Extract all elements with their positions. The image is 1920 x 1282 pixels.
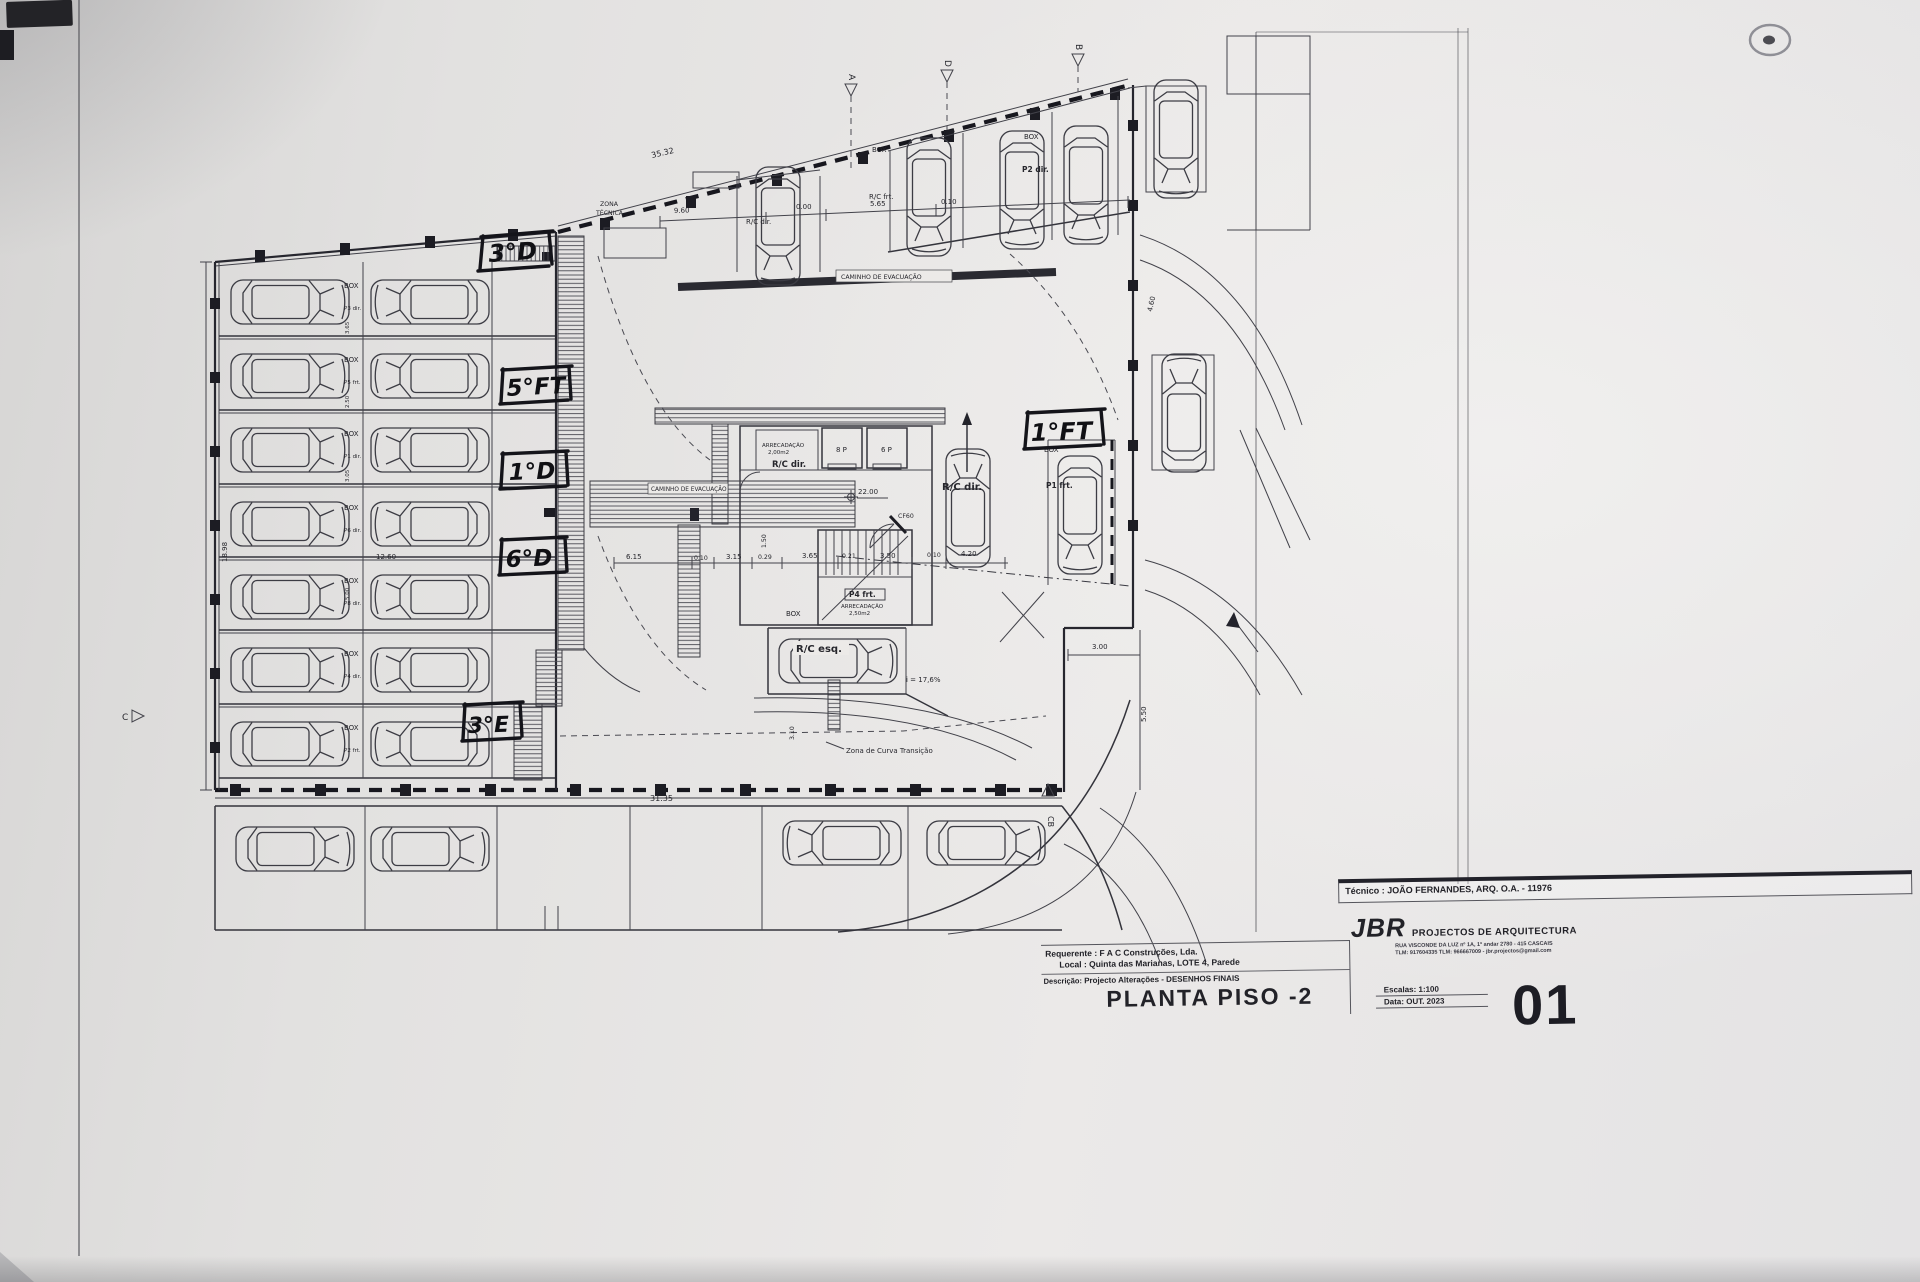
car-icon [783, 821, 901, 865]
corner-shadow [0, 1252, 34, 1282]
car-icon [231, 428, 349, 472]
cf60-door-label: CF60 [898, 513, 914, 520]
car-icon [371, 648, 489, 692]
firm-name: PROJECTOS DE ARQUITECTURA [1412, 925, 1577, 939]
p2-dir-label: P2 dir. [1022, 165, 1049, 174]
dim-label: 4.20 [961, 550, 977, 558]
car-icon [371, 280, 489, 324]
dim-label: 3.50 [880, 552, 896, 560]
handwritten-3d: 3°D [487, 237, 537, 268]
handwritten-3e: 3°E [467, 713, 509, 739]
elevator-6p-label: 6 P [881, 446, 892, 454]
dim-label: 12.60 [376, 553, 396, 561]
dim-label: 0.00 [796, 203, 812, 211]
grommet-dot [1763, 36, 1775, 45]
plan-title: PLANTA PISO -2 [1042, 982, 1350, 1014]
storage-label: ARRECADAÇÃO [762, 442, 805, 449]
car-icon [236, 827, 354, 871]
car-icon [907, 138, 951, 256]
elevator-8p-label: 8 P [836, 446, 847, 454]
box-label: BOX [872, 146, 887, 154]
car-icon [1064, 126, 1108, 244]
stall-code: P4 dir. [344, 674, 361, 680]
storage-label-2: ARRECADAÇÃO [841, 603, 884, 610]
stall-box-label: BOX [344, 650, 359, 658]
dim-label: 9.60 [674, 206, 690, 215]
handwritten-1d: 1°D [508, 458, 555, 486]
car-icon [927, 821, 1045, 865]
left-parking-block: BOX P3 dir. BOX P5 frt. BOX P1 dir. BOX … [219, 232, 556, 790]
car-icon [231, 280, 349, 324]
firm-logo: JBR [1351, 912, 1406, 943]
title-block-left: Requerente : F A C Construções, Lda. Loc… [1041, 940, 1351, 1019]
marker-a: A [846, 74, 856, 81]
descricao-label: Descrição: [1044, 976, 1082, 986]
marker-cb: CB [1046, 816, 1055, 827]
stall-box-label: BOX [344, 282, 359, 290]
marker-c: C [122, 713, 128, 723]
car-icon [371, 502, 489, 546]
dim-label: 5.00 [345, 587, 351, 600]
right-side-roads [1128, 36, 1310, 695]
stall-box-label: BOX [344, 356, 359, 364]
stall-code: P1 dir. [344, 454, 361, 460]
dim-label: 18.98 [221, 542, 229, 562]
section-markers: A D B C CB [122, 44, 1084, 827]
dim-label: 3.05 [345, 469, 351, 482]
car-icon [371, 428, 489, 472]
level-label: 22.00 [858, 488, 878, 496]
car-icon [231, 722, 349, 766]
edge-mark [0, 30, 14, 60]
title-block-right: JBRPROJECTOS DE ARQUITECTURA RUA VISCOND… [1348, 890, 1910, 1013]
car-icon [371, 575, 489, 619]
stall-box-label: BOX [344, 504, 359, 512]
evacuation-label: CAMINHO DE EVACUAÇÃO [841, 272, 922, 281]
top-area: ZONA TÉCNICA R/C dir. BOX R/C frt. BOX P… [595, 88, 1130, 285]
dim-label: 1.50 [761, 534, 768, 548]
stall-code: P8 dir. [344, 601, 361, 607]
dim-label: 3.00 [1092, 643, 1108, 651]
car-icon [231, 575, 349, 619]
title-block: Técnico : JOÃO FERNANDES, ARQ. O.A. - 11… [1032, 866, 1914, 1025]
photographed-floor-plan: BOX P3 dir. BOX P5 frt. BOX P1 dir. BOX … [0, 0, 1920, 1282]
car-icon [371, 827, 489, 871]
p1-frt-label: P1 frt. [1046, 481, 1073, 490]
dim-label: 0.10 [941, 198, 957, 206]
zona-tecnica-label-2: TÉCNICA [595, 208, 624, 217]
stall-box-label: BOX [344, 724, 359, 732]
p4-frt-label: P4 frt. [849, 590, 876, 599]
rc-dir-car-label: R/C dir. [942, 482, 982, 493]
rc-esq-label: R/C esq. [796, 644, 842, 655]
dim-label: 2.50 [345, 395, 351, 408]
stall-code: P3 dir. [344, 306, 361, 312]
zona-tecnica-label: ZONA [600, 201, 619, 208]
handwritten-6d: 6°D [505, 545, 552, 573]
sheet-number: 01 [1512, 971, 1579, 1037]
dim-label: 6.15 [626, 553, 642, 561]
handwritten-1ft: 1°FT [1030, 417, 1094, 447]
marker-d: D [942, 60, 952, 67]
floor-plan-drawing: BOX P3 dir. BOX P5 frt. BOX P1 dir. BOX … [0, 0, 1920, 1282]
dim-label: 0.29 [758, 554, 772, 561]
handwritten-5ft: 5°FT [506, 373, 568, 402]
stall-box-label: BOX [344, 430, 359, 438]
car-icon [231, 354, 349, 398]
dim-label: 5.65 [870, 200, 886, 208]
corner-mark [6, 0, 73, 28]
car-icon [231, 648, 349, 692]
car-icon [231, 502, 349, 546]
dim-label: 4.60 [1146, 295, 1157, 312]
box-label: BOX [1024, 133, 1039, 141]
car-icon [1162, 354, 1206, 472]
data-text: Data: OUT. 2023 [1376, 995, 1488, 1009]
hatched-walls [497, 172, 945, 780]
photo-artifacts [0, 0, 1790, 1282]
evacuation-label: CAMINHO DE EVACUAÇÃO [651, 486, 727, 493]
dim-label: 3.10 [789, 726, 796, 740]
stall-code: P2 frt. [344, 748, 361, 754]
box-label: BOX [786, 610, 801, 618]
evacuation-paths: CAMINHO DE EVACUAÇÃO CAMINHO DE EVACUAÇÃ… [648, 270, 1056, 494]
car-icon [1154, 80, 1198, 198]
slope-label: i = 17,6% [906, 676, 941, 684]
dim-label: 3.65 [345, 321, 351, 334]
tecnico-text: Técnico : JOÃO FERNANDES, ARQ. O.A. - 11… [1345, 883, 1552, 896]
dim-label: 5.50 [1140, 706, 1148, 722]
car-icon [1000, 131, 1044, 249]
rc-dir-label: R/C dir. [746, 218, 771, 226]
dim-label: 3.65 [802, 552, 818, 560]
bottom-box-stall: BOX R/C esq. [768, 610, 948, 716]
car-icon [1058, 456, 1102, 574]
dim-label: 3.15 [726, 553, 742, 561]
dim-label: 0.10 [694, 555, 708, 562]
rc-dir-room-label: R/C dir. [772, 460, 806, 470]
storage-area: 2,00m2 [768, 450, 789, 456]
curve-zone-label: Zona de Curva Transição [846, 747, 933, 755]
marker-b: B [1073, 44, 1083, 50]
stall-box-label: BOX [344, 577, 359, 585]
stall-code: P5 frt. [344, 380, 361, 386]
storage-area-2: 2,50m2 [849, 611, 870, 617]
dim-label: 0.10 [927, 552, 941, 559]
car-icon [371, 354, 489, 398]
dim-label: 35.32 [650, 146, 674, 160]
stall-code: P6 dir. [344, 528, 361, 534]
scale-date-box: Escalas: 1:100 Data: OUT. 2023 [1376, 983, 1488, 1009]
dim-label: 0.21 [842, 553, 856, 560]
dim-label: 31.35 [650, 794, 673, 803]
